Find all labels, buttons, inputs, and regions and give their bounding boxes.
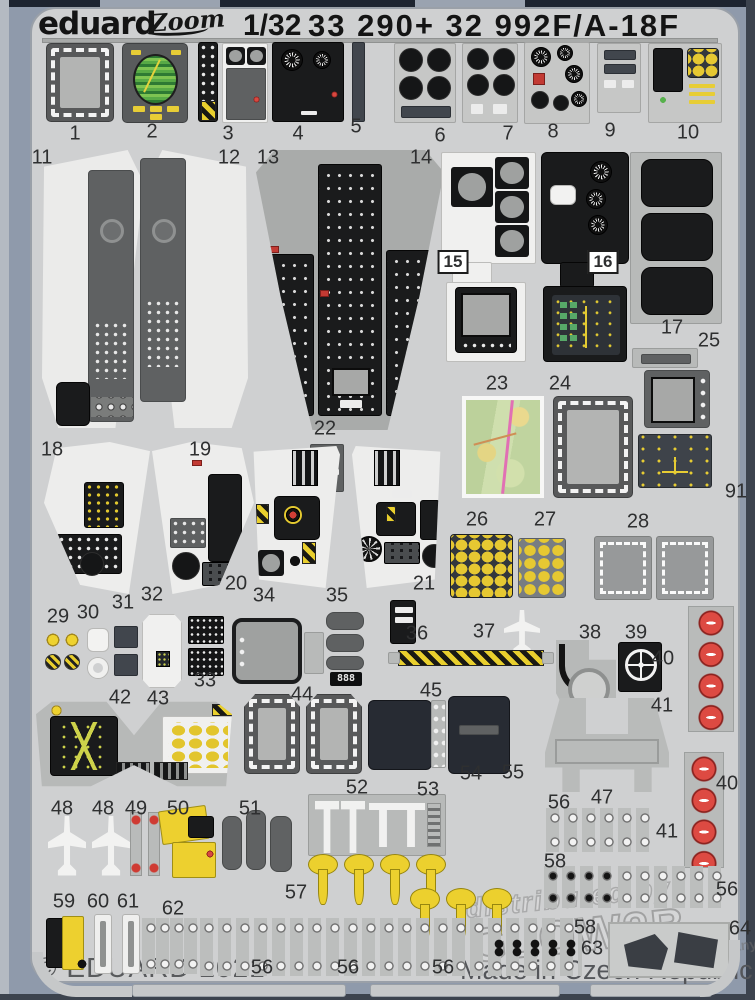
pe-part xyxy=(100,219,124,243)
pe-part xyxy=(142,918,198,974)
pe-part xyxy=(238,634,245,670)
pe-part xyxy=(571,91,587,107)
pe-part xyxy=(56,382,90,426)
pe-part xyxy=(641,267,713,315)
pe-part xyxy=(306,694,362,774)
part-number-label: 7 xyxy=(502,123,513,146)
part-number-label: 9 xyxy=(604,120,615,143)
pe-part xyxy=(247,47,266,65)
pe-part xyxy=(64,654,80,670)
pe-part xyxy=(533,73,545,85)
pe-part xyxy=(588,215,608,235)
part-number-label: 30 xyxy=(77,602,99,625)
pe-part xyxy=(461,293,511,337)
pe-part xyxy=(689,84,715,88)
pe-part xyxy=(374,450,400,486)
pe-part xyxy=(656,536,714,600)
pe-part xyxy=(281,49,303,71)
part-number-label: 26 xyxy=(466,509,488,532)
pe-part xyxy=(590,161,612,183)
part-number-label: 1 xyxy=(69,123,80,146)
part-number-label: 16 xyxy=(588,250,619,274)
pe-part xyxy=(122,43,188,123)
pe-part xyxy=(253,96,260,103)
pe-part xyxy=(531,91,549,109)
pe-part xyxy=(140,158,186,402)
pe-part xyxy=(272,42,344,122)
pe-part xyxy=(531,47,551,67)
pe-part xyxy=(431,700,446,768)
pe-part xyxy=(301,111,317,115)
pe-part xyxy=(133,106,145,112)
pe-part xyxy=(352,42,365,122)
part-number-label: 14 xyxy=(410,147,432,170)
pe-part xyxy=(344,854,372,904)
pe-part xyxy=(524,42,590,124)
pe-part xyxy=(495,191,529,223)
pe-part xyxy=(451,167,493,207)
pe-part xyxy=(427,48,451,72)
pe-part xyxy=(687,48,719,78)
top-edge-tab xyxy=(415,0,525,7)
pe-part xyxy=(471,104,483,114)
part-number-label: 40 xyxy=(716,773,738,796)
pe-part xyxy=(518,538,566,598)
part-number-label: 64 xyxy=(729,918,751,941)
pe-part xyxy=(394,43,456,123)
part-number-label: 4 xyxy=(292,123,303,146)
pe-part xyxy=(689,92,715,96)
part-number-label: 60 xyxy=(87,891,109,914)
pe-part xyxy=(459,725,499,735)
pe-part xyxy=(132,984,346,997)
part-number-label: 5 xyxy=(350,116,361,139)
part-number-label: 61 xyxy=(117,891,139,914)
part-number-label: 57 xyxy=(285,882,307,905)
pe-part xyxy=(167,106,179,112)
pe-part xyxy=(399,76,423,100)
pe-part xyxy=(495,157,529,189)
pe-part xyxy=(172,552,200,580)
pe-part xyxy=(386,506,396,522)
part-number-label: 49 xyxy=(125,798,147,821)
part-number-label: 56 xyxy=(432,957,454,980)
part-number-label: 40 xyxy=(652,648,674,671)
pe-part xyxy=(380,854,408,904)
pe-part: 888 xyxy=(326,612,366,688)
pe-part xyxy=(80,552,104,576)
pe-part xyxy=(641,354,691,364)
right-edge xyxy=(746,0,755,1000)
part-number-label: 18 xyxy=(41,439,63,462)
part-number-label: 53 xyxy=(417,779,439,802)
pe-part xyxy=(630,152,722,324)
pe-part xyxy=(142,614,182,688)
pe-part xyxy=(392,490,412,498)
part-number-label: 19 xyxy=(189,439,211,462)
pe-part xyxy=(340,400,362,408)
pe-part xyxy=(232,618,302,684)
pe-part xyxy=(553,396,633,498)
part-number-label: 50 xyxy=(167,798,189,821)
part-number-label: 37 xyxy=(473,621,495,644)
pe-part xyxy=(604,64,636,74)
pe-part xyxy=(376,502,416,536)
pe-part xyxy=(446,282,526,362)
pe-part xyxy=(64,632,80,648)
part-number-label: 52 xyxy=(346,777,368,800)
part-number-label: 56 xyxy=(337,957,359,980)
part-number-label: 28 xyxy=(627,511,649,534)
part-number-label: 21 xyxy=(413,573,435,596)
pe-part xyxy=(604,50,636,60)
part-number-label: 56 xyxy=(716,879,738,902)
part-number-label: 56 xyxy=(548,792,570,815)
pe-part xyxy=(88,658,108,678)
part-number-label: 15 xyxy=(438,250,469,274)
pe-part xyxy=(467,74,489,96)
part-number-label: 29 xyxy=(47,606,69,629)
pe-part xyxy=(320,290,329,297)
pe-part xyxy=(45,632,83,678)
part-number-label: 27 xyxy=(534,509,556,532)
pe-part xyxy=(397,803,425,847)
pe-part xyxy=(288,554,302,568)
pe-part xyxy=(604,80,616,88)
part-number-label: 44 xyxy=(291,684,313,707)
pe-part xyxy=(659,96,667,104)
pe-part xyxy=(399,48,423,72)
pe-part xyxy=(370,984,560,997)
part-number-label: 31 xyxy=(112,592,134,615)
part-number-label: 22 xyxy=(314,418,336,441)
pe-part xyxy=(308,794,446,856)
part-number-label: 33 xyxy=(194,670,216,693)
part-number-label: 91 xyxy=(725,481,747,504)
pe-part xyxy=(91,397,133,417)
part-number-label: 2 xyxy=(146,121,157,144)
pe-part xyxy=(688,606,734,732)
pe-part xyxy=(150,114,162,120)
pe-part xyxy=(441,152,536,264)
pe-part xyxy=(565,65,583,83)
pe-part xyxy=(462,43,518,123)
pe-part xyxy=(156,651,170,667)
pe-part xyxy=(32,952,132,997)
part-number-label: 59 xyxy=(53,891,75,914)
pe-part xyxy=(546,808,652,852)
pe-part xyxy=(130,812,142,876)
eduard-logo: eduard xyxy=(38,6,156,42)
pe-part xyxy=(188,816,214,838)
pe-part xyxy=(461,341,511,349)
part-number-label: 10 xyxy=(677,122,699,145)
pe-part xyxy=(352,446,444,588)
part-number-label: 11 xyxy=(32,147,53,170)
pe-part xyxy=(315,801,339,853)
pe-part xyxy=(188,616,224,644)
pe-part xyxy=(114,626,138,648)
pe-part xyxy=(326,634,364,652)
pe-part xyxy=(493,104,507,114)
pe-part xyxy=(270,816,292,872)
part-number-label: 13 xyxy=(257,147,279,170)
pe-part xyxy=(648,43,722,123)
pe-part xyxy=(395,607,413,613)
part-number-label: 55 xyxy=(502,762,524,785)
pe-part xyxy=(557,45,573,61)
pe-part xyxy=(550,185,576,205)
product-scan: eduard Zoom 1/32 33 290+ 32 992F/A-18F 8… xyxy=(0,0,755,1000)
part-number-label: 63 xyxy=(581,938,603,961)
pe-part xyxy=(618,866,722,908)
pe-part xyxy=(222,816,242,870)
pe-part xyxy=(586,189,606,209)
part-number-label: 3 xyxy=(222,123,233,146)
part-number-label: 47 xyxy=(591,787,613,810)
pe-part xyxy=(699,375,707,425)
part-number-label: 32 xyxy=(141,584,163,607)
part-number-label: 20 xyxy=(225,573,247,596)
pe-part xyxy=(198,42,218,122)
pe-part xyxy=(331,91,338,98)
pe-part xyxy=(632,348,698,368)
pe-part xyxy=(553,95,569,111)
pe-part xyxy=(256,504,269,524)
part-number-label: 56 xyxy=(251,957,273,980)
pe-part xyxy=(326,656,364,670)
part-number-label: 48 xyxy=(51,798,73,821)
pe-part xyxy=(684,752,724,868)
pe-part xyxy=(641,213,713,261)
part-number-label: 41 xyxy=(651,695,673,718)
pe-part xyxy=(150,106,162,112)
part-number-label: 51 xyxy=(239,798,261,821)
pe-part xyxy=(467,48,489,70)
pe-part xyxy=(490,928,578,968)
pe-part xyxy=(493,74,515,96)
pe-part xyxy=(222,43,268,123)
part-number-label: 25 xyxy=(698,330,720,353)
pe-part xyxy=(112,622,140,682)
pe-part xyxy=(172,842,216,878)
pe-part xyxy=(624,934,668,970)
part-number-label: 34 xyxy=(253,585,275,608)
pe-part xyxy=(114,654,138,676)
pe-part xyxy=(638,434,712,488)
pe-part xyxy=(622,80,634,88)
pe-part xyxy=(651,377,695,423)
pe-part xyxy=(590,984,712,997)
pe-part xyxy=(201,101,216,121)
part-number-label: 43 xyxy=(147,688,169,711)
part-number-label: 54 xyxy=(460,763,482,786)
pe-part: 888 xyxy=(330,672,362,686)
pe-part xyxy=(292,450,318,486)
part-number-label: 8 xyxy=(547,121,558,144)
pe-part xyxy=(594,536,652,600)
pe-part xyxy=(341,801,365,853)
pe-part xyxy=(226,68,266,120)
pe-part xyxy=(398,650,544,666)
pe-part xyxy=(286,508,300,522)
pe-part xyxy=(542,652,554,664)
pe-part xyxy=(258,550,284,576)
pe-part xyxy=(46,43,114,122)
pe-part xyxy=(88,170,134,422)
pe-part xyxy=(462,396,544,498)
pe-part xyxy=(308,854,336,904)
part-number-label: 24 xyxy=(549,373,571,396)
pe-part xyxy=(154,762,188,780)
pe-part xyxy=(644,370,710,428)
pe-part xyxy=(543,286,627,362)
pe-part xyxy=(84,482,124,528)
pe-part xyxy=(450,534,513,598)
pe-part xyxy=(384,542,420,564)
pe-part xyxy=(495,225,529,257)
pe-part xyxy=(93,321,131,379)
part-number-label: 45 xyxy=(420,680,442,703)
part-number-label: 6 xyxy=(434,125,445,148)
part-number-label: 17 xyxy=(661,317,683,340)
pe-part xyxy=(493,48,515,70)
pe-part xyxy=(388,652,400,664)
pe-part xyxy=(85,628,111,686)
pe-part xyxy=(313,51,331,69)
pe-part xyxy=(401,106,451,118)
pe-part xyxy=(368,700,432,770)
pe-part xyxy=(302,542,316,564)
pe-part xyxy=(58,722,110,770)
pe-part xyxy=(541,152,629,264)
pe-part xyxy=(145,299,183,367)
part-number-label: 23 xyxy=(486,373,508,396)
pe-part xyxy=(700,940,740,997)
pe-part xyxy=(206,850,214,858)
pe-part xyxy=(369,803,397,847)
part-number-label: 58 xyxy=(544,851,566,874)
pe-part xyxy=(552,295,620,355)
pe-part xyxy=(641,159,713,207)
pe-part xyxy=(87,628,109,652)
pe-part xyxy=(131,50,141,55)
pe-part xyxy=(653,48,683,92)
part-number-label: 38 xyxy=(579,622,601,645)
zoom-series-logo: Zoom xyxy=(149,3,226,37)
pe-part xyxy=(689,100,715,104)
pe-part xyxy=(171,50,181,55)
pe-part xyxy=(45,654,61,670)
pe-part xyxy=(45,632,61,648)
part-number-label: 36 xyxy=(406,623,428,646)
part-number-label: 48 xyxy=(92,798,114,821)
pe-part xyxy=(152,219,176,243)
pe-part xyxy=(304,632,324,674)
pe-part xyxy=(427,803,441,847)
part-number-label: 39 xyxy=(625,622,647,645)
pe-part xyxy=(427,76,451,100)
pe-part xyxy=(250,446,340,588)
pe-part xyxy=(128,812,162,878)
pe-part xyxy=(332,368,370,396)
part-number-label: 41 xyxy=(656,821,678,844)
left-edge xyxy=(0,0,9,1000)
part-number-label: 35 xyxy=(326,585,348,608)
pe-part xyxy=(597,43,641,113)
pe-part xyxy=(170,518,206,548)
pe-part xyxy=(326,612,364,630)
pe-part xyxy=(226,47,245,65)
part-number-label: 12 xyxy=(218,147,240,170)
part-number-label: 58 xyxy=(574,917,596,940)
part-number-label: 42 xyxy=(109,687,131,710)
part-number-label: 62 xyxy=(162,898,184,921)
